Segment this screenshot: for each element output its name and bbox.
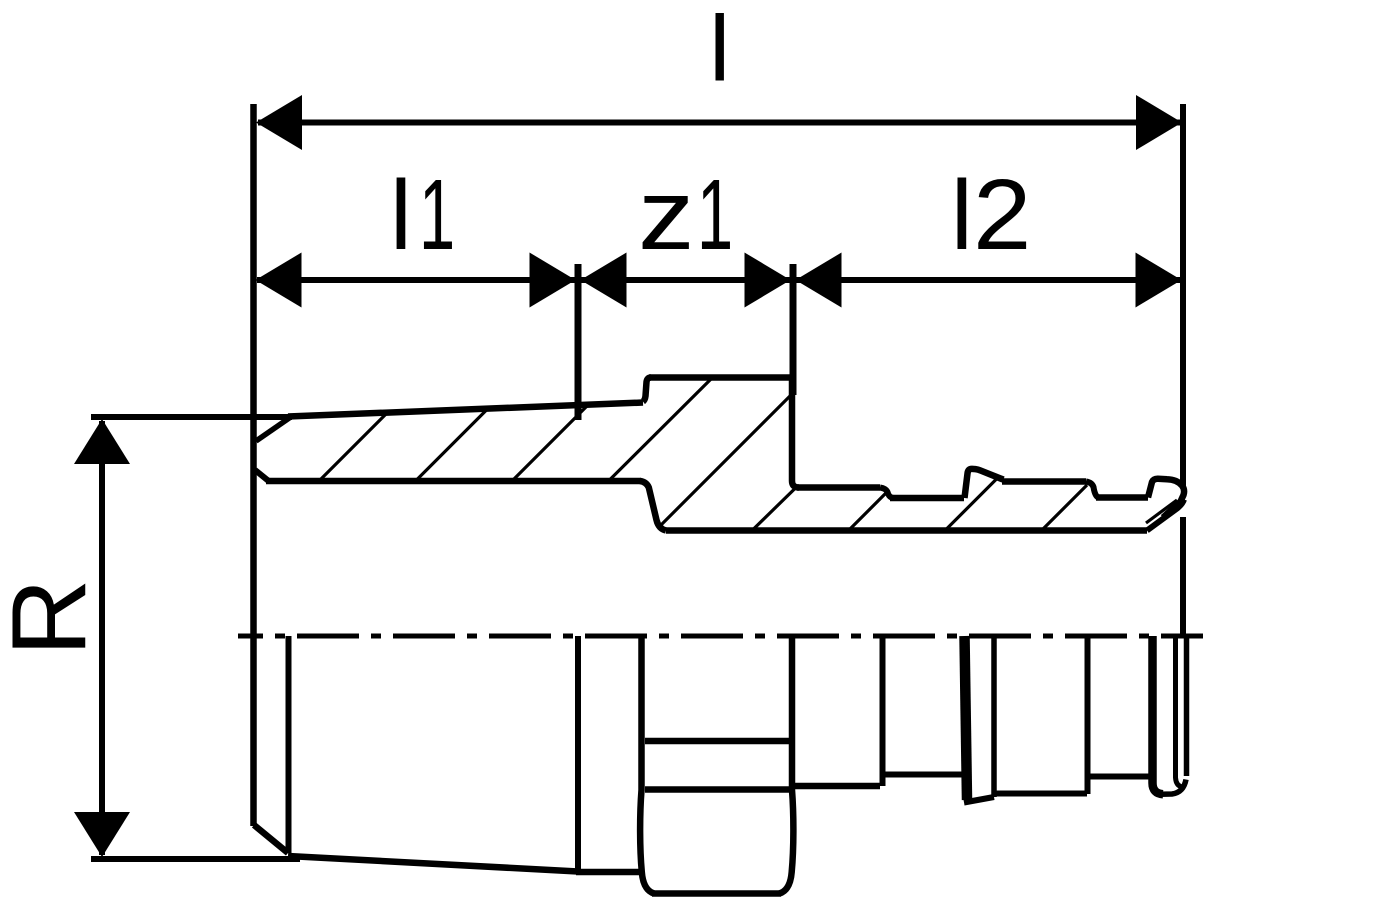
svg-text:z: z <box>638 158 694 270</box>
svg-text:R: R <box>0 578 108 656</box>
svg-text:1: 1 <box>419 159 455 270</box>
svg-text:2: 2 <box>973 158 1031 270</box>
svg-text:1: 1 <box>697 159 733 270</box>
